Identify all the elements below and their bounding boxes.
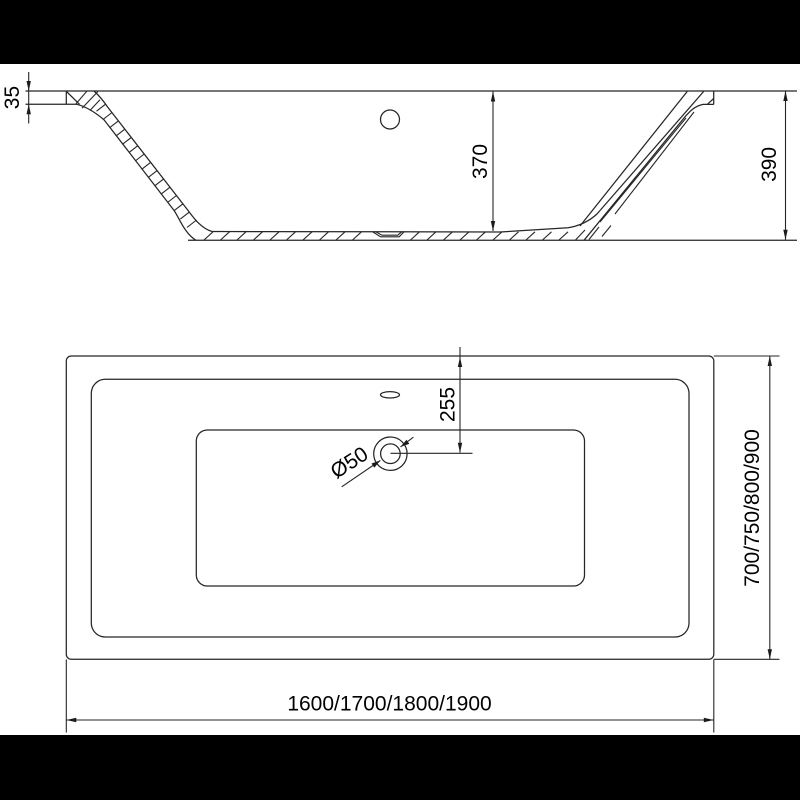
svg-text:1600/1700/1800/1900: 1600/1700/1800/1900: [287, 693, 491, 716]
svg-text:35: 35: [1, 86, 24, 109]
svg-text:390: 390: [758, 147, 781, 182]
svg-text:370: 370: [469, 144, 492, 179]
svg-text:700/750/800/900: 700/750/800/900: [741, 429, 764, 587]
svg-text:255: 255: [437, 387, 460, 422]
